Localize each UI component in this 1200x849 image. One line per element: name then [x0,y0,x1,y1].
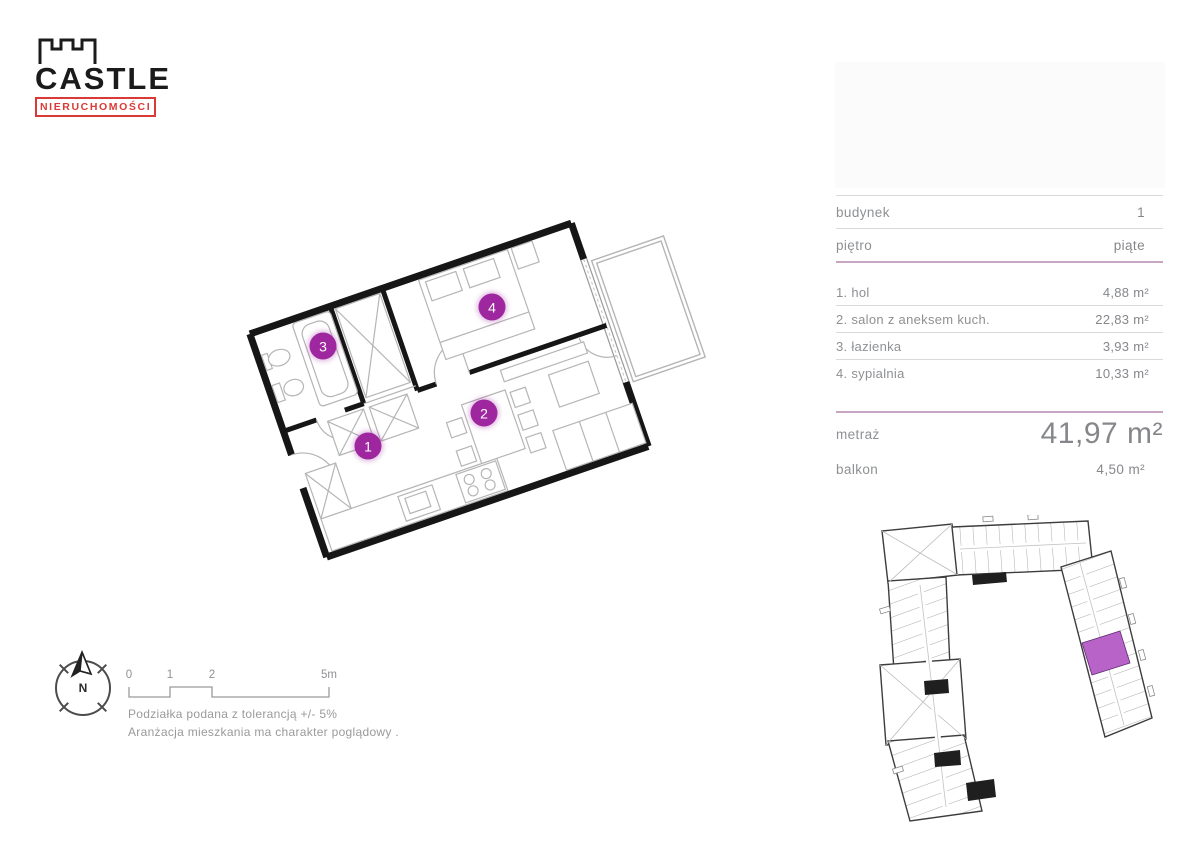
balcony-label: balkon [836,462,878,477]
room-label: 1. hol [836,285,870,300]
castle-logo: CASTLE NIERUCHOMOŚCI [35,36,175,117]
scale-tick-0: 0 [126,669,132,681]
plan-notes: Podziałka podana z tolerancją +/- 5% Ara… [128,705,399,741]
scale-tick-2: 2 [209,669,215,681]
room-label: 4. sypialnia [836,366,905,381]
compass-icon: N [46,648,120,724]
brand-subtitle: NIERUCHOMOŚCI [35,97,156,117]
room-marker-3: 3 [310,333,337,360]
floor-value: piąte [1114,238,1163,253]
balcony-value: 4,50 m² [1096,462,1163,477]
scale-tick-5m: 5m [321,669,337,681]
room-label: 3. łazienka [836,339,901,354]
total-area-row: metraż 41,97 m² [836,413,1163,455]
room-marker-2: 2 [471,400,498,427]
room-area: 22,83 m² [1095,312,1163,327]
room-area: 3,93 m² [1103,339,1163,354]
room-row: 3. łazienka 3,93 m² [836,333,1163,359]
floor-label: piętro [836,238,872,253]
room-label: 2. salon z aneksem kuch. [836,312,990,327]
note-tolerance: Podziałka podana z tolerancją +/- 5% [128,705,399,723]
room-row: 1. hol 4,88 m² [836,279,1163,305]
room-area: 10,33 m² [1095,366,1163,381]
accent-divider [836,261,1163,263]
room-list: 1. hol 4,88 m² 2. salon z aneksem kuch. … [836,279,1163,386]
castle-turret-icon [37,36,101,64]
room-marker-1: 1 [355,433,382,460]
unit-details-panel: budynek 1 piętro piąte 1. hol 4,88 m² 2.… [836,195,1163,483]
room-marker-4: 4 [479,294,506,321]
apartment-floorplan [205,210,745,590]
total-area-value: 41,97 m² [1041,417,1163,451]
scale-bar: 0 1 2 5m [120,662,350,706]
compass-needle [72,652,91,676]
note-arrangement: Aranżacja mieszkania ma charakter pogląd… [128,723,399,741]
building-value: 1 [1137,205,1163,220]
room-row: 4. sypialnia 10,33 m² [836,360,1163,386]
building-label: budynek [836,205,890,220]
brochure-page: CASTLE NIERUCHOMOŚCI [0,0,1200,849]
room-area: 4,88 m² [1103,285,1163,300]
compass-north-label: N [79,681,88,695]
photo-placeholder [835,62,1165,188]
total-area-label: metraż [836,427,880,442]
balcony-row: balkon 4,50 m² [836,455,1163,483]
building-site-plan [868,515,1168,825]
building-row: budynek 1 [836,196,1163,228]
scale-tick-1: 1 [167,669,173,681]
floor-row: piętro piąte [836,229,1163,261]
room-row: 2. salon z aneksem kuch. 22,83 m² [836,306,1163,332]
brand-name: CASTLE [35,63,175,94]
